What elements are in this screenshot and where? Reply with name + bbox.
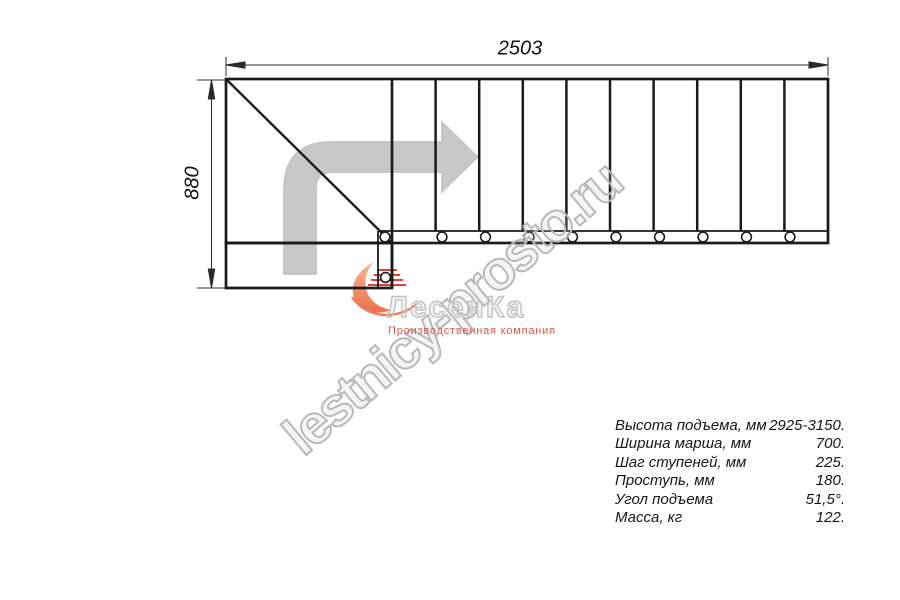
spec-value: 2925-3150. <box>769 417 845 435</box>
spec-value: 122. <box>816 509 845 527</box>
spec-row-angle: Угол подъема 51,5°. <box>615 491 845 509</box>
spec-row-mass: Масса, кг 122. <box>615 509 845 527</box>
stair-drawing-page: lestnicy-prosto.ru ЛесенКа Производствен… <box>0 0 900 600</box>
spec-label: Шаг ступеней, мм <box>615 454 746 472</box>
direction-arrow <box>283 120 479 275</box>
logo-subtitle: Производственная компания <box>388 325 556 337</box>
spec-row-step-pitch: Шаг ступеней, мм 225. <box>615 454 845 472</box>
spec-row-tread: Проступь, мм 180. <box>615 472 845 490</box>
logo-company-name: ЛесенКа <box>387 291 567 325</box>
spec-value: 700. <box>816 435 845 453</box>
height-dimension-label: 880 <box>182 166 205 199</box>
spec-label: Угол подъема <box>615 491 713 509</box>
spec-value: 225. <box>816 454 845 472</box>
spec-label: Ширина марша, мм <box>615 435 751 453</box>
spec-row-march-width: Ширина марша, мм 700. <box>615 435 845 453</box>
spec-table: Высота подъема, мм 2925-3150. Ширина мар… <box>615 417 845 527</box>
spec-label: Масса, кг <box>615 509 682 527</box>
spec-label: Проступь, мм <box>615 472 715 490</box>
spec-row-height: Высота подъема, мм 2925-3150. <box>615 417 845 435</box>
spec-label: Высота подъема, мм <box>615 417 767 435</box>
spec-value: 51,5°. <box>806 491 845 509</box>
spec-value: 180. <box>816 472 845 490</box>
width-dimension-label: 2503 <box>498 38 543 61</box>
